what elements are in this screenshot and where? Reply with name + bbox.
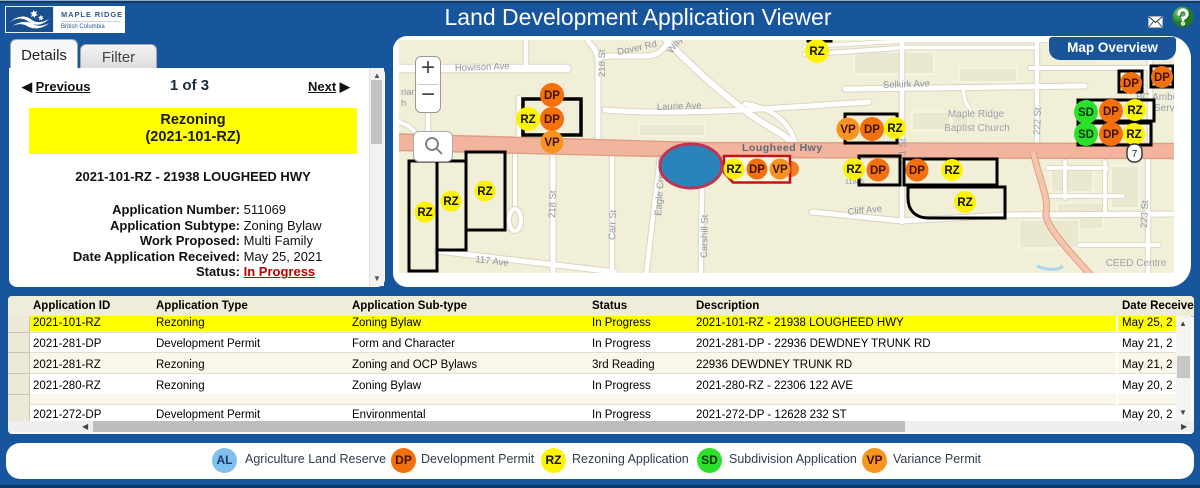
svg-text:VP: VP — [772, 164, 788, 176]
svg-text:DP: DP — [544, 114, 560, 126]
svg-text:Selkirk Ave: Selkirk Ave — [883, 78, 930, 91]
svg-text:7: 7 — [1132, 149, 1138, 160]
svg-text:223 St: 223 St — [1139, 200, 1151, 228]
svg-text:DP: DP — [1123, 78, 1139, 90]
svg-text:RZ: RZ — [726, 164, 741, 176]
svg-text:RZ: RZ — [1126, 129, 1141, 141]
svg-text:Carshill St: Carshill St — [699, 214, 711, 258]
svg-text:DP: DP — [909, 165, 925, 177]
svg-text:218 St: 218 St — [597, 49, 608, 77]
svg-text:SD: SD — [1078, 129, 1094, 141]
svg-text:DP: DP — [1103, 106, 1119, 118]
svg-text:218 St: 218 St — [547, 190, 559, 218]
svg-text:Carr St: Carr St — [607, 209, 619, 240]
svg-text:RZ: RZ — [417, 207, 432, 219]
svg-text:RZ: RZ — [944, 165, 959, 177]
svg-text:RZ: RZ — [520, 114, 535, 126]
svg-text:RZ: RZ — [443, 196, 458, 208]
svg-text:Lougheed Hwy: Lougheed Hwy — [742, 142, 823, 154]
svg-text:RZ: RZ — [809, 46, 824, 58]
svg-text:Maple Ridge: Maple Ridge — [948, 109, 1005, 120]
svg-text:DP: DP — [1103, 129, 1119, 141]
svg-text:RZ: RZ — [477, 186, 492, 198]
svg-text:VP: VP — [840, 124, 856, 136]
svg-text:DP: DP — [544, 90, 560, 102]
svg-text:RZ: RZ — [1127, 105, 1142, 117]
svg-text:DP: DP — [1154, 72, 1170, 84]
svg-text:RZ: RZ — [957, 197, 972, 209]
svg-text:Laurie Ave: Laurie Ave — [657, 100, 702, 113]
svg-text:222 St: 222 St — [1032, 107, 1044, 135]
svg-text:SD: SD — [1078, 107, 1094, 119]
svg-text:h: h — [401, 98, 406, 109]
svg-text:Baptist Church: Baptist Church — [944, 123, 1010, 134]
svg-text:DP: DP — [864, 124, 880, 136]
svg-text:RZ: RZ — [846, 164, 861, 176]
svg-text:Servi: Servi — [1154, 103, 1177, 114]
svg-text:Howison Ave: Howison Ave — [455, 61, 510, 74]
svg-text:DP: DP — [870, 165, 886, 177]
svg-text:RZ: RZ — [887, 123, 902, 135]
svg-text:DP: DP — [749, 164, 765, 176]
svg-text:VP: VP — [544, 137, 560, 149]
svg-text:CEED Centre: CEED Centre — [1106, 258, 1167, 269]
